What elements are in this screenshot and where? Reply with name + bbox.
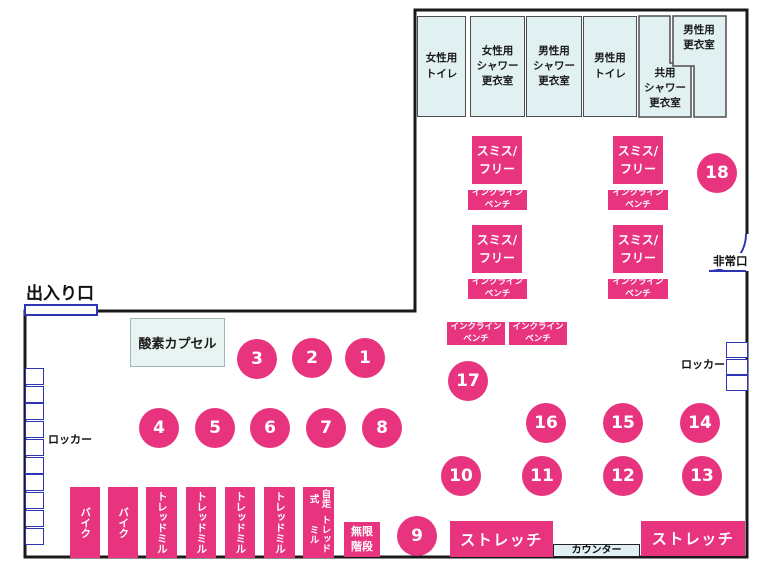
cardio-self-propelled-treadmill-label: 自走式: [307, 487, 331, 511]
smith-free-rack: スミス/ フリー: [613, 136, 663, 184]
machine-station-number: 8: [362, 408, 402, 448]
entrance-door-icon: [24, 304, 98, 316]
stretch-zone: ストレッチ: [450, 521, 553, 557]
locker-cell: [25, 368, 44, 385]
smith-free-rack: スミス/ フリー: [472, 225, 522, 273]
counter-zone: カウンター: [553, 544, 640, 557]
room-mens-locker-room-label: 男性用 更衣室: [676, 23, 722, 53]
locker-cell: [25, 403, 44, 420]
locker-cell: [25, 386, 44, 403]
room-womens-shower-locker: 女性用 シャワー 更衣室: [470, 16, 525, 117]
machine-station-number: 5: [195, 408, 235, 448]
room-mens-toilet: 男性用 トイレ: [583, 16, 637, 117]
incline-bench: インクライン ベンチ: [468, 190, 527, 210]
machine-station-number: 2: [292, 338, 332, 378]
machine-station-number: 17: [448, 361, 488, 401]
machine-station-number: 9: [397, 516, 437, 556]
cardio-treadmill: トレッドミル: [264, 487, 295, 558]
cardio-bike: バイク: [70, 487, 100, 558]
machine-station-number: 15: [603, 403, 643, 443]
incline-bench: インクライン ベンチ: [608, 190, 668, 210]
locker-label-left: ロッカー: [48, 431, 92, 447]
locker-cell: [25, 439, 44, 456]
cardio-self-propelled-treadmill-label: トレッドミル: [307, 511, 331, 558]
cardio-treadmill: トレッドミル: [186, 487, 216, 558]
room-mens-shower-locker: 男性用 シャワー 更衣室: [526, 16, 582, 117]
machine-station-number: 16: [526, 403, 566, 443]
machine-station-number: 10: [441, 456, 481, 496]
entrance-label: 出入り口: [26, 279, 94, 304]
machine-station-number: 6: [250, 408, 290, 448]
machine-station-number: 4: [139, 408, 179, 448]
machine-station-number: 1: [345, 338, 385, 378]
locker-cell: [25, 474, 44, 491]
infinite-stairs-zone: 無限 階段: [344, 522, 380, 557]
machine-station-number: 14: [680, 403, 720, 443]
incline-bench: インクライン ベンチ: [608, 279, 668, 299]
cardio-bike: バイク: [108, 487, 138, 558]
machine-station-number: 13: [682, 456, 722, 496]
locker-label-right: ロッカー: [681, 356, 725, 372]
room-womens-toilet: 女性用 トイレ: [417, 16, 466, 117]
locker-cell: [726, 375, 748, 391]
machine-station-number: 11: [522, 456, 562, 496]
locker-cell: [726, 359, 748, 375]
machine-station-number: 18: [697, 153, 737, 193]
locker-cell: [25, 510, 44, 527]
machine-station-number: 12: [603, 456, 643, 496]
cardio-treadmill: トレッドミル: [225, 487, 255, 558]
locker-cell: [25, 421, 44, 438]
incline-bench: インクライン ベンチ: [509, 322, 567, 345]
locker-cell: [25, 492, 44, 509]
locker-cell: [25, 528, 44, 545]
incline-bench: インクライン ベンチ: [468, 279, 527, 299]
machine-station-number: 3: [237, 339, 277, 379]
gym-floorplan: 出入り口 非常口 共用 シャワー 更衣室 男性用 更衣室 酸素カプセル ロッカー…: [0, 0, 768, 570]
emergency-exit-label: 非常口: [712, 253, 749, 269]
locker-cell: [25, 457, 44, 474]
locker-cell: [726, 342, 748, 358]
machine-station-number: 7: [306, 408, 346, 448]
stretch-zone: ストレッチ: [641, 521, 745, 556]
smith-free-rack: スミス/ フリー: [613, 225, 663, 273]
room-shared-shower-locker-label: 共用 シャワー 更衣室: [639, 66, 691, 112]
smith-free-rack: スミス/ フリー: [472, 136, 522, 184]
oxygen-capsule-zone: 酸素カプセル: [130, 318, 225, 367]
incline-bench: インクライン ベンチ: [447, 322, 505, 345]
cardio-treadmill: トレッドミル: [146, 487, 177, 558]
cardio-self-propelled-treadmill: 自走式トレッドミル: [303, 487, 334, 558]
